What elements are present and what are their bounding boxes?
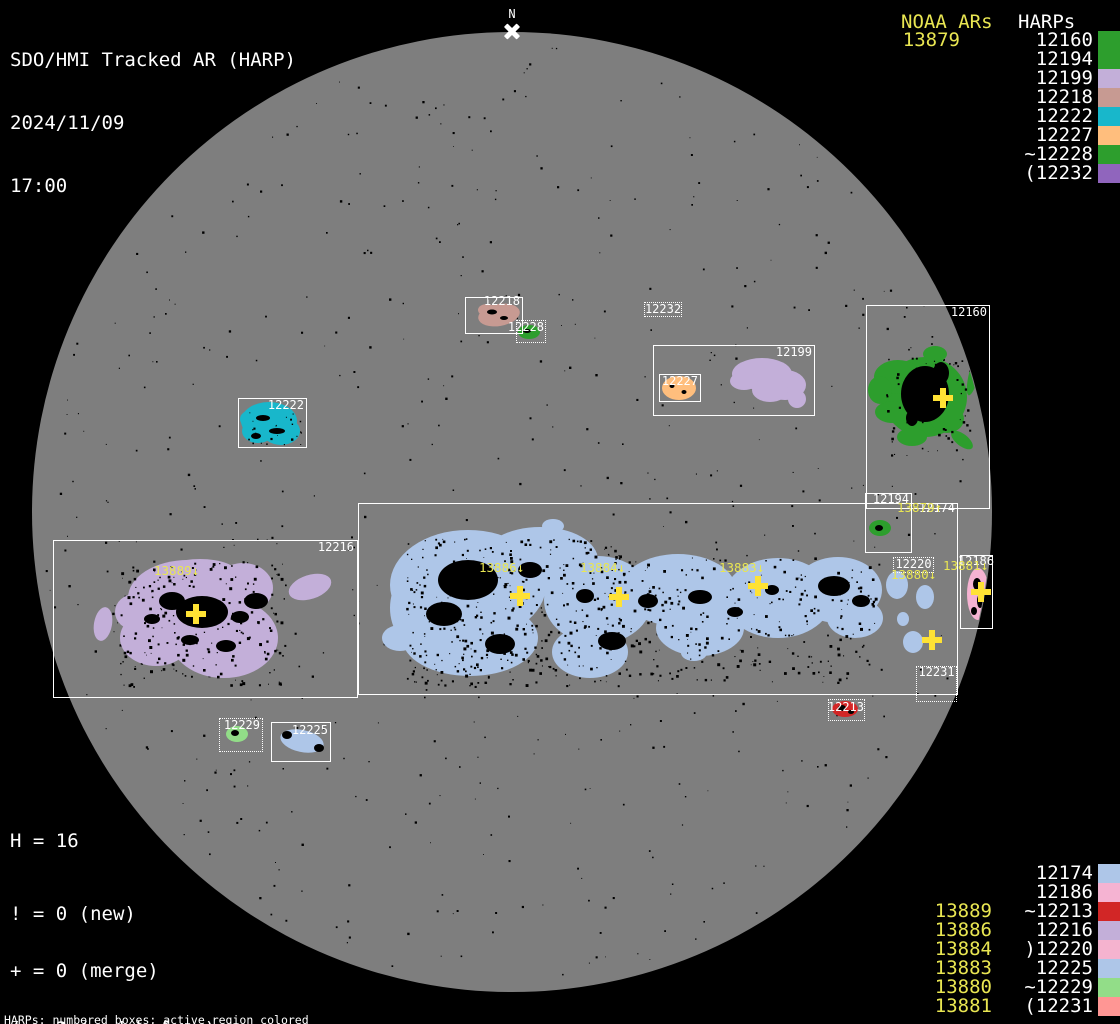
harp-color-swatch [1098,69,1120,88]
harp-box-12231: 12231 [916,666,957,702]
harp-box-12160: 12160 [866,305,990,509]
noaa-cross-13879 [933,388,953,408]
noaa-cross-13884 [609,587,629,607]
harp-box-label: 12199 [776,346,812,359]
noaa-shifted-label-13883: 13883↓ [719,561,764,574]
harp-color-swatch [1098,997,1120,1016]
harp-color-swatch [1098,107,1120,126]
harp-number: (12231 [1000,997,1093,1016]
noaa-cross-13883 [748,576,768,596]
noaa-shifted-label-13889: 13889↓ [154,564,199,577]
harp-box-12229: 12229 [219,718,263,752]
footer-notes: HARPs: numbered boxes; active region col… [4,990,406,1024]
harp-box-label: 12231 [918,666,954,679]
north-x-icon [502,23,522,40]
harp-box-12232: 12232 [644,302,682,317]
harp-color-swatch [1098,921,1120,940]
harp-color-swatch [1098,959,1120,978]
harp-color-swatch [1098,50,1120,69]
noaa-number: 13881 [920,997,992,1016]
harp-color-swatch [1098,864,1120,883]
harp-color-swatch [1098,978,1120,997]
harp-box-12222: 12222 [238,398,307,448]
harp-color-swatch [1098,126,1120,145]
harp-box-12174: 12174 [358,503,958,695]
harp-box-label: 12232 [645,303,681,316]
harp-box-label: 12229 [224,719,260,732]
harp-color-swatch [1098,145,1120,164]
harp-box-label: 12222 [268,399,304,412]
harp-color-swatch [1098,88,1120,107]
solar-harp-map: SDO/HMI Tracked AR (HARP) 2024/11/09 17:… [0,0,1120,1024]
symbol-legend-line: ! = 0 (new) [10,905,227,924]
harp-box-12225: 12225 [271,722,331,762]
harp-box-label: 12218 [484,295,520,308]
harp-count: H = 16 [10,831,79,852]
harp-box-label: 12225 [292,724,328,737]
harp-box-12227: 12227 [659,374,701,402]
symbol-legend-line: + = 0 (merge) [10,962,227,981]
harp-color-swatch [1098,31,1120,50]
harp-box-label: 12213 [828,701,864,714]
page-title: SDO/HMI Tracked AR (HARP) [10,50,296,71]
observation-time: 17:00 [10,176,296,197]
noaa-shifted-label-13881: 13881↓ [943,559,988,572]
harp-box-12213: 12213 [828,699,865,721]
north-marker: N [498,8,526,40]
noaa-shifted-label-13879: 13879↑ [897,501,942,514]
footer-line-harps: HARPs: numbered boxes; active region col… [4,1014,406,1024]
noaa-cross-13881 [971,582,991,602]
harp-number: (12232 [1000,164,1093,183]
harp-color-swatch [1098,902,1120,921]
harp-box-label: 12228 [508,321,544,334]
noaa-shifted-label-13886: 13886↓ [479,561,524,574]
noaa-cross-13889 [186,604,206,624]
harp-box-12228: 12228 [516,320,546,343]
observation-date: 2024/11/09 [10,113,296,134]
harp-box-label: 12216 [318,541,354,554]
noaa-shifted-label-13880: 13880↓ [891,568,936,581]
noaa-number: 13879 [890,31,960,50]
legend-row: 13881 (12231 [890,997,1120,1016]
noaa-cross-13886 [510,586,530,606]
noaa-cross-13880 [922,630,942,650]
harp-color-swatch [1098,164,1120,183]
harp-color-swatch [1098,883,1120,902]
harp-color-swatch [1098,940,1120,959]
harp-box-label: 12160 [951,306,987,319]
noaa-shifted-label-13884: 13884↓ [580,561,625,574]
header: SDO/HMI Tracked AR (HARP) 2024/11/09 17:… [10,8,296,239]
north-label: N [498,8,526,21]
harp-box-label: 12227 [662,375,698,388]
legend-row: (12232 [890,164,1120,183]
